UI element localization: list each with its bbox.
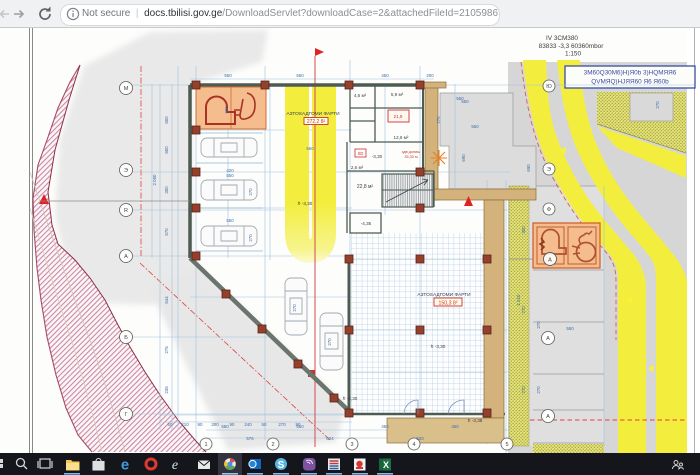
svg-text:2: 2: [271, 442, 274, 448]
svg-text:550: 550: [566, 326, 574, 331]
svg-text:450: 450: [381, 424, 389, 429]
svg-text:270: 270: [536, 386, 541, 394]
svg-text:270: 270: [278, 422, 286, 427]
svg-text:Ф: Ф: [547, 207, 551, 213]
svg-text:S: S: [278, 460, 285, 471]
svg-text:A: A: [124, 254, 128, 260]
svg-text:АЗТОЅАДГОМИ ФАРТИ: АЗТОЅАДГОМИ ФАРТИ: [286, 111, 340, 117]
svg-text:1: 1: [204, 442, 207, 448]
svg-text:50: 50: [262, 422, 267, 427]
svg-text:ℏ -3,30: ℏ -3,30: [298, 201, 313, 206]
svg-text:Ю: Ю: [546, 84, 552, 90]
svg-text:2 060: 2 060: [152, 174, 157, 186]
svg-text:270: 270: [521, 306, 526, 314]
svg-text:35,30 м: 35,30 м: [404, 155, 418, 159]
svg-text:ℏ -3,30: ℏ -3,30: [343, 396, 358, 401]
svg-text:IV 3CM380: IV 3CM380: [546, 35, 578, 42]
svg-text:200: 200: [426, 73, 434, 78]
svg-text:12,6 м²: 12,6 м²: [394, 135, 409, 140]
svg-text:A: A: [548, 258, 552, 264]
svg-text:150,3 8²: 150,3 8²: [438, 301, 457, 307]
svg-text:-4,35: -4,35: [361, 221, 372, 226]
svg-text:3M60Q30M6)H)Я0b 3)HQMЯЯ6: 3M60Q30M6)H)Я0b 3)HQMЯЯ6: [584, 70, 677, 77]
svg-text:550: 550: [471, 124, 479, 129]
svg-text:90: 90: [230, 422, 235, 427]
svg-text:300: 300: [521, 226, 526, 234]
svg-text:5,9 м²: 5,9 м²: [391, 92, 404, 97]
svg-text:200: 200: [211, 422, 219, 427]
svg-text:300: 300: [164, 186, 169, 194]
svg-text:235: 235: [164, 386, 169, 394]
svg-text:270: 270: [655, 101, 660, 109]
svg-text:210: 210: [181, 422, 189, 427]
svg-text:3: 3: [350, 442, 353, 448]
svg-text:e: e: [172, 458, 178, 473]
svg-text:270: 270: [536, 321, 541, 329]
svg-text:QVMЯQ)HJЯЯ60 Я6 Я60b: QVMЯQ)HJЯЯ60 Я6 Я60b: [591, 79, 669, 86]
svg-text:270: 270: [521, 386, 526, 394]
svg-text:240: 240: [244, 422, 252, 427]
svg-text:600: 600: [164, 116, 169, 124]
svg-text:520: 520: [416, 436, 424, 441]
svg-text:576: 576: [246, 436, 254, 441]
svg-text:550: 550: [221, 424, 229, 429]
svg-text:ℏ -3,38: ℏ -3,38: [468, 418, 483, 423]
svg-text:X: X: [383, 460, 389, 470]
svg-text:90: 90: [198, 422, 203, 427]
svg-text:-3,30: -3,30: [372, 154, 383, 159]
svg-text:M: M: [124, 86, 129, 92]
svg-text:e: e: [121, 457, 129, 474]
svg-text:A: A: [546, 414, 550, 420]
svg-text:270: 270: [292, 304, 297, 312]
svg-text:R: R: [124, 208, 128, 214]
svg-text:Э: Э: [124, 168, 128, 174]
svg-text:4,6 м²: 4,6 м²: [354, 93, 367, 98]
svg-text:270: 270: [248, 234, 253, 242]
svg-text:644: 644: [164, 296, 169, 304]
svg-text:550: 550: [226, 218, 234, 223]
svg-text:1:150: 1:150: [565, 51, 581, 58]
svg-text:83833 -3,3 60360mbor: 83833 -3,3 60360mbor: [539, 43, 605, 50]
svg-text:2,6 м²: 2,6 м²: [351, 165, 364, 170]
svg-text:560: 560: [306, 146, 314, 151]
svg-text:Э: Э: [547, 167, 551, 173]
svg-text:90: 90: [296, 422, 301, 427]
svg-text:Г: Г: [125, 412, 128, 418]
svg-text:Б: Б: [124, 335, 128, 341]
svg-text:АЗТОЅАДГОМИ ФАРТИ: АЗТОЅАДГОМИ ФАРТИ: [417, 292, 471, 298]
svg-text:22,8 м²: 22,8 м²: [357, 184, 374, 190]
svg-text:450: 450: [381, 73, 389, 78]
svg-text:270: 270: [248, 188, 253, 196]
svg-text:1 610: 1 610: [516, 294, 521, 306]
svg-text:21,9: 21,9: [394, 114, 403, 119]
svg-text:550: 550: [461, 99, 469, 104]
svg-text:400: 400: [224, 106, 229, 114]
svg-text:4: 4: [412, 442, 415, 448]
svg-text:270: 270: [327, 338, 332, 346]
svg-text:SD: SD: [358, 151, 364, 156]
svg-text:690: 690: [526, 164, 531, 172]
svg-text:600: 600: [164, 146, 169, 154]
svg-text:550: 550: [226, 173, 234, 178]
svg-text:5: 5: [505, 442, 508, 448]
svg-text:здв дониш: здв дониш: [402, 150, 421, 154]
svg-text:690: 690: [461, 154, 466, 162]
svg-text:560: 560: [296, 73, 304, 78]
svg-text:A: A: [546, 336, 550, 342]
svg-text:550: 550: [224, 73, 232, 78]
svg-text:450: 450: [451, 424, 459, 429]
svg-text:272,2 8²: 272,2 8²: [307, 119, 326, 125]
svg-text:570: 570: [164, 228, 169, 236]
svg-text:ℏ -3,30: ℏ -3,30: [431, 344, 446, 349]
svg-text:624: 624: [326, 436, 334, 441]
svg-text:50: 50: [168, 422, 173, 427]
svg-text:270: 270: [436, 116, 441, 124]
svg-text:275: 275: [164, 346, 169, 354]
